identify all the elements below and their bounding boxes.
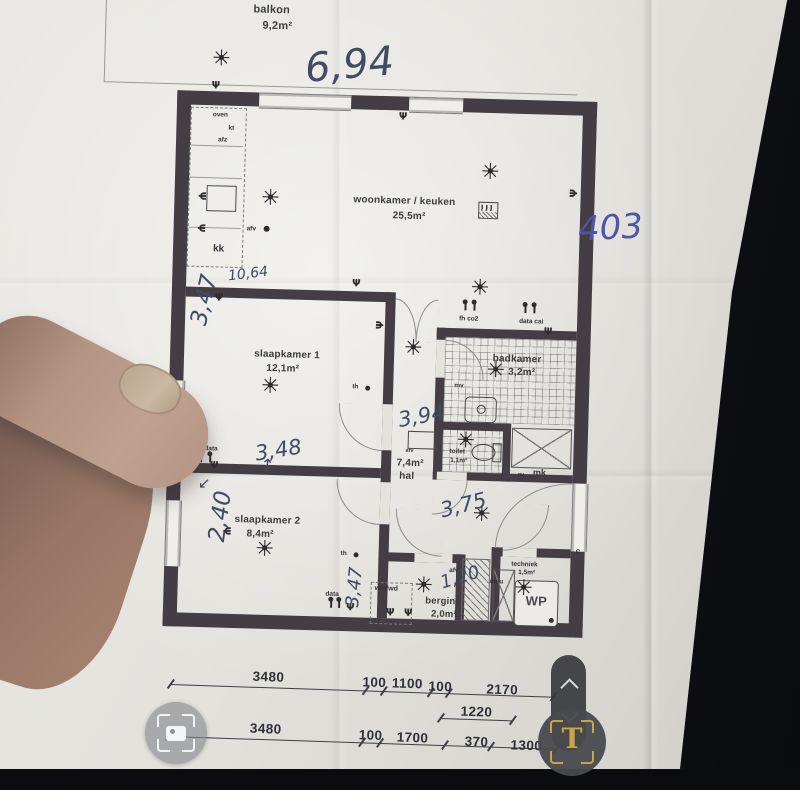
handwritten-top-width: 6,94 — [303, 38, 396, 92]
handwritten-berging-height: 3,47 — [342, 566, 367, 608]
handwritten-s2-arrow: ↙ — [198, 474, 211, 492]
dim-row1-4: 2170 — [486, 681, 518, 697]
dim-row1-1: 100 — [362, 674, 386, 690]
dim-row1-2: 1100 — [392, 675, 423, 691]
image-icon — [166, 726, 186, 741]
dim-row2-1: 100 — [359, 727, 383, 743]
handwritten-s1-arrow: ↑ — [259, 455, 276, 477]
lens-icon — [182, 714, 195, 727]
dim-row1-3: 100 — [428, 679, 452, 695]
dim-mid: 1220 — [460, 704, 492, 720]
translate-text-button[interactable]: T — [538, 708, 606, 776]
lens-search-button[interactable] — [145, 702, 207, 764]
dim-row2-3: 370 — [464, 734, 488, 750]
handwritten-apartment-number: 403 — [577, 206, 644, 249]
dim-row2-2: 1700 — [396, 730, 428, 746]
lens-icon — [182, 739, 195, 752]
chevron-up-icon[interactable] — [560, 678, 578, 696]
translate-letter: T — [538, 722, 606, 755]
dim-row1-0: 3480 — [252, 669, 284, 685]
photo-scene: balkon 9,2m² — [0, 0, 800, 769]
dim-row2-0: 3480 — [250, 721, 282, 737]
